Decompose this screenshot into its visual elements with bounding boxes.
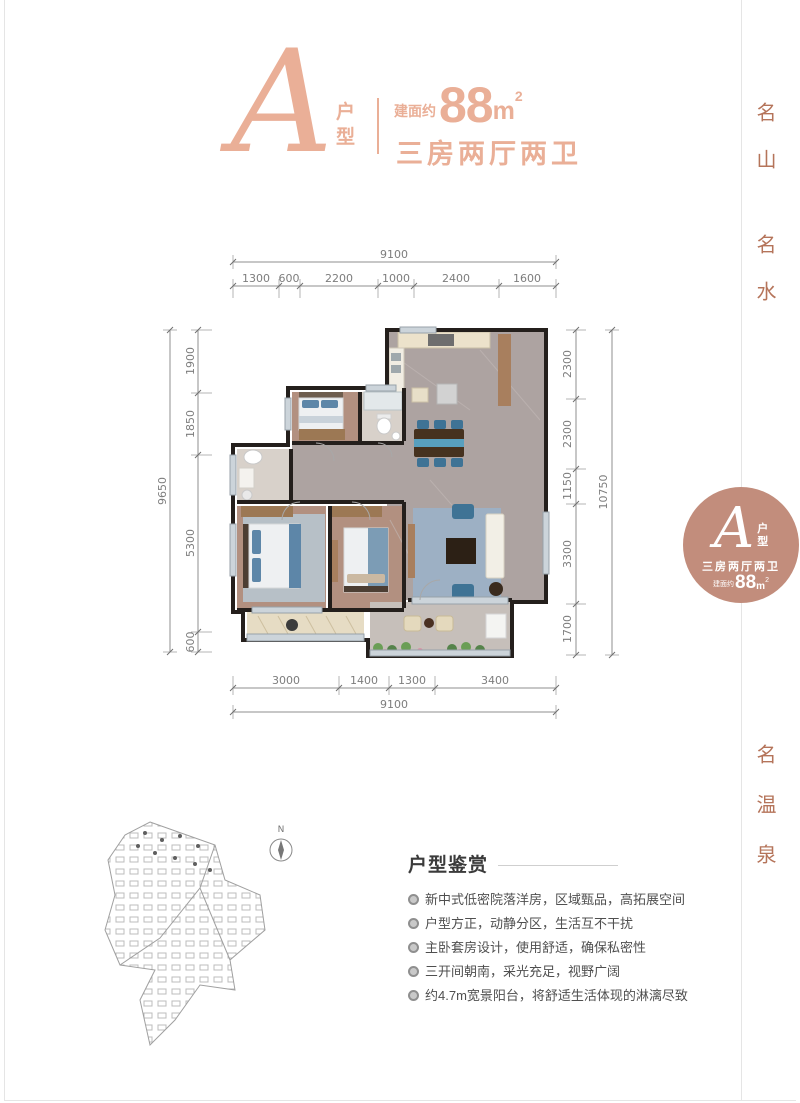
bullet-icon	[408, 966, 419, 977]
floor-plan	[230, 327, 549, 656]
badge-type-char-2: 型	[757, 536, 768, 549]
svg-text:9100: 9100	[380, 248, 408, 261]
unit-type-char-2: 型	[336, 125, 355, 150]
dimension-top: 9100 1300 600 2200 1000 2400 1600	[230, 248, 559, 298]
features-divider	[498, 865, 618, 866]
svg-text:2300: 2300	[561, 350, 574, 378]
site-boundary	[105, 822, 265, 1045]
sink-icon	[239, 468, 254, 488]
badge-area-exponent: 2	[765, 577, 769, 584]
badge-letter: A	[714, 501, 754, 557]
floor-corridor	[292, 441, 404, 502]
compass-icon: N	[266, 822, 296, 868]
badge-area-prefix: 建面约	[713, 579, 734, 592]
area-prefix: 建面约	[394, 101, 436, 128]
svg-text:600: 600	[184, 632, 197, 653]
dimension-right: 2300 2300 1150 3300 1700 10750	[561, 327, 619, 658]
badge-type-char-1: 户	[757, 523, 768, 536]
side-text-mingwenquan: 名温泉	[751, 744, 780, 894]
feature-item: 约4.7m宽景阳台，将舒适生活体现的淋漓尽致	[408, 987, 698, 1004]
svg-text:1300: 1300	[242, 272, 270, 285]
tv-cabinet	[408, 524, 415, 578]
svg-text:2200: 2200	[325, 272, 353, 285]
bullet-icon	[408, 918, 419, 929]
master-furniture	[241, 506, 325, 602]
sink-icon	[391, 353, 401, 361]
unit-badge: A 户 型 三房两厅两卫 建面约 88 m 2	[683, 487, 799, 603]
feature-item: 新中式低密院落洋房，区域甄品，高拓展空间	[408, 891, 698, 908]
bedroom2-furniture	[299, 392, 345, 440]
features-list: 新中式低密院落洋房，区域甄品，高拓展空间 户型方正，动静分区，生活互不干扰 主卧…	[408, 891, 698, 1004]
svg-text:3400: 3400	[481, 674, 509, 687]
svg-text:1700: 1700	[561, 615, 574, 643]
frame-line-left	[4, 0, 5, 1101]
area-unit: m	[493, 97, 515, 128]
fridge-icon	[437, 384, 457, 404]
toilet-icon	[244, 450, 262, 464]
svg-text:3300: 3300	[561, 540, 574, 568]
features-title: 户型鉴赏	[408, 850, 488, 877]
stove-icon	[428, 334, 454, 346]
badge-area-unit: m	[756, 581, 765, 592]
badge-top: A 户 型	[683, 501, 799, 557]
features-section: 户型鉴赏 新中式低密院落洋房，区域甄品，高拓展空间 户型方正，动静分区，生活互不…	[408, 850, 698, 1011]
bullet-icon	[408, 894, 419, 905]
features-header: 户型鉴赏	[408, 850, 698, 877]
header-area: 建面约 88 m 2	[394, 82, 523, 128]
svg-text:1150: 1150	[561, 472, 574, 500]
dimension-bottom: 3000 1400 1300 3400 9100	[230, 674, 559, 719]
svg-text:1300: 1300	[398, 674, 426, 687]
wardrobe2	[299, 429, 345, 440]
coffee-table	[446, 538, 476, 564]
badge-area-value: 88	[734, 574, 756, 592]
badge-type-label: 户 型	[757, 523, 768, 549]
site-plan-map	[100, 818, 270, 1048]
dining-furniture	[414, 420, 464, 467]
svg-text:1850: 1850	[184, 410, 197, 438]
feature-item: 主卧套房设计，使用舒适，确保私密性	[408, 939, 698, 956]
toilet-icon	[377, 418, 391, 434]
area-value: 88	[436, 82, 493, 128]
side-text-mingshui: 名水	[751, 234, 780, 328]
bullet-icon	[408, 990, 419, 1001]
svg-text:9650: 9650	[156, 477, 169, 505]
bullet-icon	[408, 942, 419, 953]
sofa	[486, 514, 504, 578]
master-wardrobe	[241, 506, 293, 517]
dimension-left: 9650 1900 1850 5300 600	[156, 327, 212, 655]
area-exponent: 2	[515, 88, 523, 104]
unit-type-char-1: 户	[336, 100, 355, 125]
svg-text:1400: 1400	[350, 674, 378, 687]
svg-text:N: N	[278, 825, 285, 835]
sideboard	[498, 334, 511, 406]
svg-text:9100: 9100	[380, 698, 408, 711]
side-text-mingshan: 名山	[751, 102, 780, 196]
living-furniture	[408, 504, 504, 602]
floor-plan-figure: 9100 1300 600 2200 1000 2400 1600 9650	[150, 245, 630, 725]
svg-text:3000: 3000	[272, 674, 300, 687]
feature-item: 三开间朝南，采光充足，视野广阔	[408, 963, 698, 980]
feature-item: 户型方正，动静分区，生活互不干扰	[408, 915, 698, 932]
svg-text:1600: 1600	[513, 272, 541, 285]
header-divider	[377, 98, 379, 154]
wardrobe3	[332, 506, 382, 517]
svg-text:600: 600	[279, 272, 300, 285]
svg-text:1000: 1000	[382, 272, 410, 285]
shower	[364, 392, 402, 410]
unit-type-label: 户 型	[336, 100, 355, 150]
svg-text:5300: 5300	[184, 529, 197, 557]
badge-area: 建面约 88 m 2	[683, 574, 799, 592]
header-layout-text: 三房两厅两卫	[396, 132, 582, 171]
svg-text:2300: 2300	[561, 420, 574, 448]
svg-text:2400: 2400	[442, 272, 470, 285]
svg-text:1900: 1900	[184, 347, 197, 375]
svg-text:10750: 10750	[597, 475, 610, 510]
frame-line-bottom	[4, 1100, 796, 1101]
